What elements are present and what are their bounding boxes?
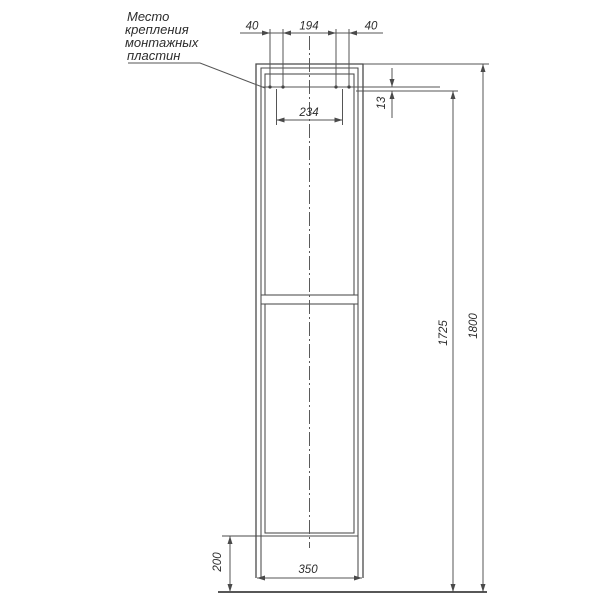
technical-drawing-page: 40 194 40 234 13 1725 1800 (0, 0, 600, 600)
dim-label-40-right: 40 (365, 21, 378, 33)
dim-label-194: 194 (299, 21, 318, 33)
dim-plinth: 200 (212, 536, 233, 592)
dim-label-234: 234 (298, 107, 318, 119)
dim-plate-centers: 234 (277, 89, 343, 125)
cabinet-body (222, 36, 363, 578)
cabinet-dimension-drawing: 40 194 40 234 13 1725 1800 (0, 0, 600, 600)
dim-label-40-left: 40 (246, 21, 259, 33)
arrowhead (451, 584, 456, 592)
arrowhead (283, 31, 291, 36)
arrowhead (481, 584, 486, 592)
arrowhead (262, 31, 270, 36)
arrowhead (390, 91, 395, 99)
dim-plate-top-offset: 13 (376, 68, 395, 118)
dim-label-350: 350 (298, 564, 318, 576)
arrowhead (228, 536, 233, 544)
dim-heights: 1725 1800 (363, 64, 489, 592)
arrowhead (335, 118, 343, 123)
arrowhead (277, 118, 285, 123)
dim-label-1725: 1725 (438, 320, 450, 346)
dim-width: 350 (257, 564, 362, 581)
arrowhead (228, 584, 233, 592)
arrowhead (481, 64, 486, 72)
dim-label-200: 200 (212, 552, 224, 573)
mounting-plate-reference (128, 63, 458, 91)
arrowhead (328, 31, 336, 36)
dim-label-13: 13 (376, 96, 388, 109)
arrowhead (349, 31, 357, 36)
note-leader-line (128, 63, 265, 88)
dim-label-1800: 1800 (468, 313, 480, 339)
note-line-4: пластин (127, 48, 180, 63)
arrowhead (451, 91, 456, 99)
mounting-note: Место крепления монтажных пластин (125, 9, 199, 63)
arrowhead (390, 79, 395, 87)
